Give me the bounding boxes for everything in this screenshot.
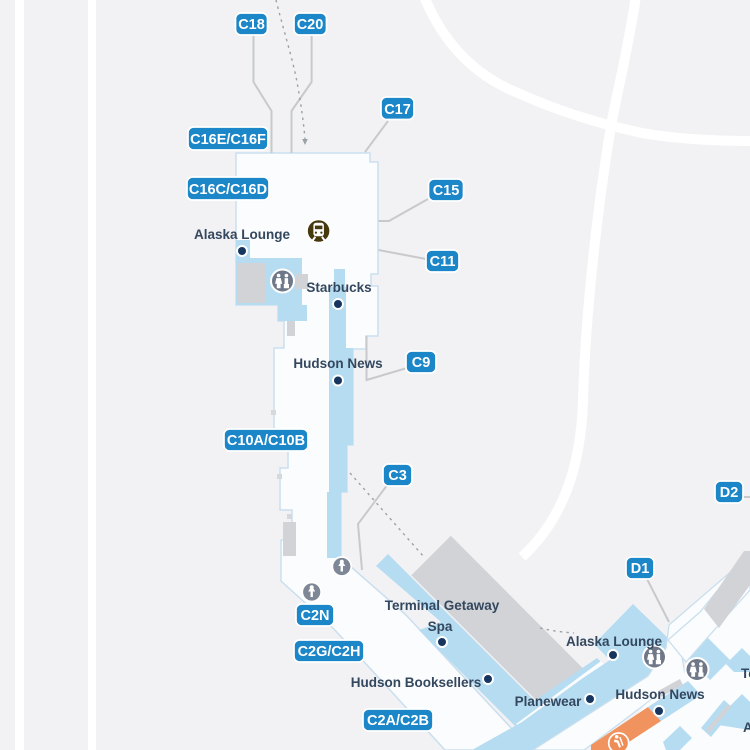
svg-text:C2G/C2H: C2G/C2H <box>298 644 361 660</box>
svg-text:Starbucks: Starbucks <box>306 280 371 295</box>
svg-text:C16E/C16F: C16E/C16F <box>190 132 266 148</box>
svg-text:C10A/C10B: C10A/C10B <box>227 433 305 449</box>
svg-text:D2: D2 <box>720 485 739 501</box>
svg-text:Spa: Spa <box>428 619 453 634</box>
svg-text:Hudson Booksellers: Hudson Booksellers <box>351 675 482 690</box>
svg-text:Alaska Lounge: Alaska Lounge <box>566 634 663 649</box>
svg-text:C20: C20 <box>297 17 324 33</box>
svg-text:D1: D1 <box>631 561 650 577</box>
svg-text:C3: C3 <box>388 468 407 484</box>
svg-text:Hudson News: Hudson News <box>293 356 382 371</box>
svg-text:C17: C17 <box>384 102 411 118</box>
svg-text:Terminal Getaway: Terminal Getaway <box>385 598 500 613</box>
svg-text:Te: Te <box>741 666 750 681</box>
svg-text:C18: C18 <box>238 17 265 33</box>
svg-text:Al: Al <box>743 720 750 735</box>
svg-text:Planewear: Planewear <box>515 694 583 709</box>
svg-text:C9: C9 <box>412 355 431 371</box>
svg-text:C2A/C2B: C2A/C2B <box>367 713 429 729</box>
svg-text:C16C/C16D: C16C/C16D <box>189 182 267 198</box>
svg-text:C15: C15 <box>433 183 460 199</box>
svg-text:C2N: C2N <box>300 608 329 624</box>
svg-text:Alaska Lounge: Alaska Lounge <box>194 227 291 242</box>
svg-text:C11: C11 <box>430 254 456 270</box>
svg-text:Hudson News: Hudson News <box>615 687 704 702</box>
